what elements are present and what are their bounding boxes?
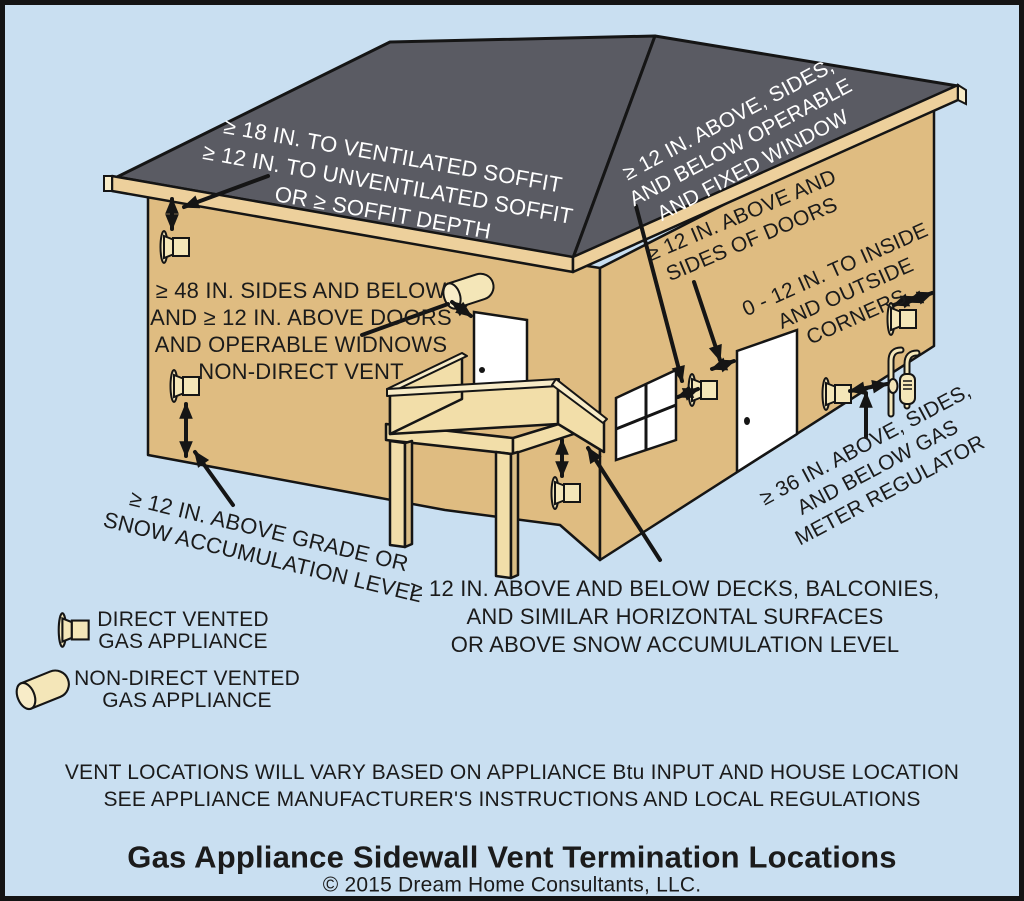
label-line: SEE APPLIANCE MANUFACTURER'S INSTRUCTION…	[65, 786, 959, 813]
label-line: DIRECT VENTED	[97, 609, 268, 631]
label-line: AND OPERABLE WIDNOWS	[150, 331, 452, 358]
meter-regulator	[889, 379, 898, 393]
label-line: VENT LOCATIONS WILL VARY BASED ON APPLIA…	[65, 759, 959, 786]
legend-item-direct-vented: DIRECT VENTED GAS APPLIANCE	[97, 609, 268, 653]
copyright-text: © 2015 Dream Home Consultants, LLC.	[323, 872, 701, 899]
label-line: AND ≥ 12 IN. ABOVE DOORS	[150, 304, 452, 331]
left-door-knob	[479, 367, 485, 373]
page-title: Gas Appliance Sidewall Vent Termination …	[127, 844, 896, 871]
non-direct-vent-icon	[13, 666, 73, 711]
legend-item-non-direct-vented: NON-DIRECT VENTED GAS APPLIANCE	[74, 668, 300, 712]
non-direct-clearance-label: ≥ 48 IN. SIDES AND BELOW AND ≥ 12 IN. AB…	[150, 277, 452, 385]
vent-diagram: ≥ 18 IN. TO VENTILATED SOFFIT ≥ 12 IN. T…	[0, 0, 1024, 901]
fascia-left-cap	[104, 176, 112, 191]
label-line: OR ABOVE SNOW ACCUMULATION LEVEL	[410, 631, 939, 659]
label-line: AND SIMILAR HORIZONTAL SURFACES	[410, 603, 939, 631]
fascia-right-cap	[958, 85, 966, 104]
label-line: NON-DIRECT VENTED	[74, 668, 300, 690]
deck-clearance-label: ≥ 12 IN. ABOVE AND BELOW DECKS, BALCONIE…	[410, 575, 939, 659]
deck-leg	[390, 441, 405, 547]
deck-leg-side	[405, 441, 412, 547]
label-line: GAS APPLIANCE	[97, 631, 268, 653]
label-line: ≥ 12 IN. ABOVE AND BELOW DECKS, BALCONIE…	[410, 575, 939, 603]
disclaimer-note: VENT LOCATIONS WILL VARY BASED ON APPLIA…	[65, 759, 959, 813]
deck-leg-side	[511, 452, 518, 578]
label-line: ≥ 48 IN. SIDES AND BELOW	[150, 277, 452, 304]
label-line: NON-DIRECT VENT	[150, 358, 452, 385]
label-line: GAS APPLIANCE	[74, 690, 300, 712]
direct-vent-icon	[59, 613, 89, 647]
deck-leg	[496, 452, 511, 578]
